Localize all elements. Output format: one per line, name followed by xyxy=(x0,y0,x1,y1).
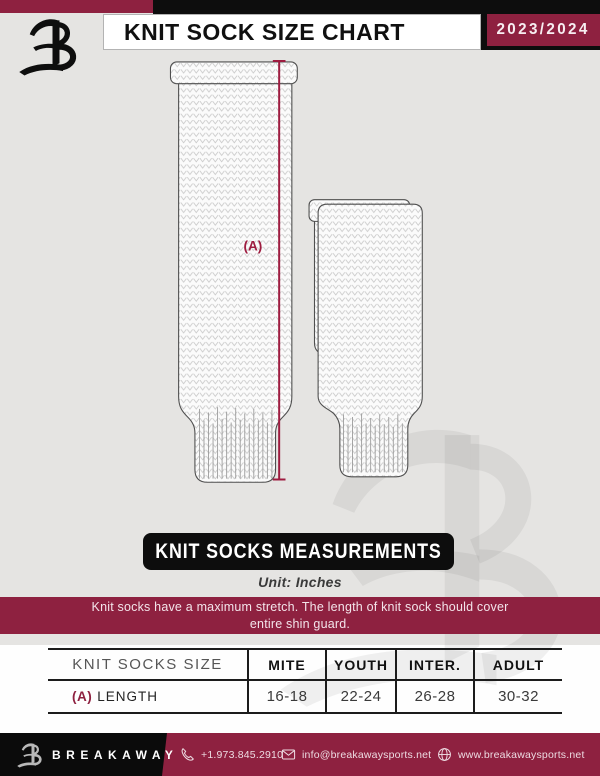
table-title-cell: KNIT SOCKS SIZE xyxy=(48,650,247,681)
mail-icon xyxy=(281,747,296,762)
season-badge: 2023/2024 xyxy=(487,14,600,46)
row-prefix-a: (A) xyxy=(72,689,92,704)
row-label-length: (A) LENGTH xyxy=(48,681,247,712)
measurement-label-a: (A) xyxy=(243,238,262,253)
column-header-inter: INTER. xyxy=(395,650,473,681)
brand-name: BREAKAWAY xyxy=(52,733,178,776)
website-url: www.breakawaysports.net xyxy=(458,749,585,761)
table-cell-inter: 26-28 xyxy=(395,681,473,712)
row-label: LENGTH xyxy=(97,689,158,704)
table-cell-mite: 16-18 xyxy=(247,681,325,712)
column-header-adult: ADULT xyxy=(473,650,562,681)
email-item[interactable]: info@breakawaysports.net xyxy=(281,733,431,776)
website-item[interactable]: www.breakawaysports.net xyxy=(437,733,585,776)
stretch-note-line2: entire shin guard. xyxy=(250,616,350,633)
phone-number: +1.973.845.2910 xyxy=(201,749,283,761)
unit-label: Unit: Inches xyxy=(0,574,600,590)
email-address: info@breakawaysports.net xyxy=(302,749,431,761)
table-cell-adult: 30-32 xyxy=(473,681,562,712)
sock-small xyxy=(318,204,422,477)
size-table: KNIT SOCKS SIZE MITE YOUTH INTER. ADULT … xyxy=(48,648,562,714)
table-title: KNIT SOCKS SIZE xyxy=(72,656,223,673)
title-box: KNIT SOCK SIZE CHART xyxy=(103,14,481,50)
phone-icon xyxy=(180,747,195,762)
column-header-youth: YOUTH xyxy=(325,650,395,681)
phone-item[interactable]: +1.973.845.2910 xyxy=(180,733,283,776)
sock-diagram: (A) xyxy=(0,52,600,552)
page-title: KNIT SOCK SIZE CHART xyxy=(124,19,405,46)
footer-monogram-icon xyxy=(15,737,45,771)
column-header-mite: MITE xyxy=(247,650,325,681)
globe-icon xyxy=(437,747,452,762)
footer: BREAKAWAY +1.973.845.2910 info@breakaway… xyxy=(0,733,600,776)
knit-sock-size-chart-page: KNIT SOCK SIZE CHART 2023/2024 xyxy=(0,0,600,776)
brand-monogram-icon xyxy=(14,6,84,82)
measurements-banner-label: KNIT SOCKS MEASUREMENTS xyxy=(155,540,441,564)
stretch-note-banner: Knit socks have a maximum stretch. The l… xyxy=(0,597,600,634)
table-cell-youth: 22-24 xyxy=(325,681,395,712)
stretch-note-line1: Knit socks have a maximum stretch. The l… xyxy=(92,599,509,616)
measurements-banner: KNIT SOCKS MEASUREMENTS xyxy=(143,533,454,570)
season-label: 2023/2024 xyxy=(497,21,590,39)
